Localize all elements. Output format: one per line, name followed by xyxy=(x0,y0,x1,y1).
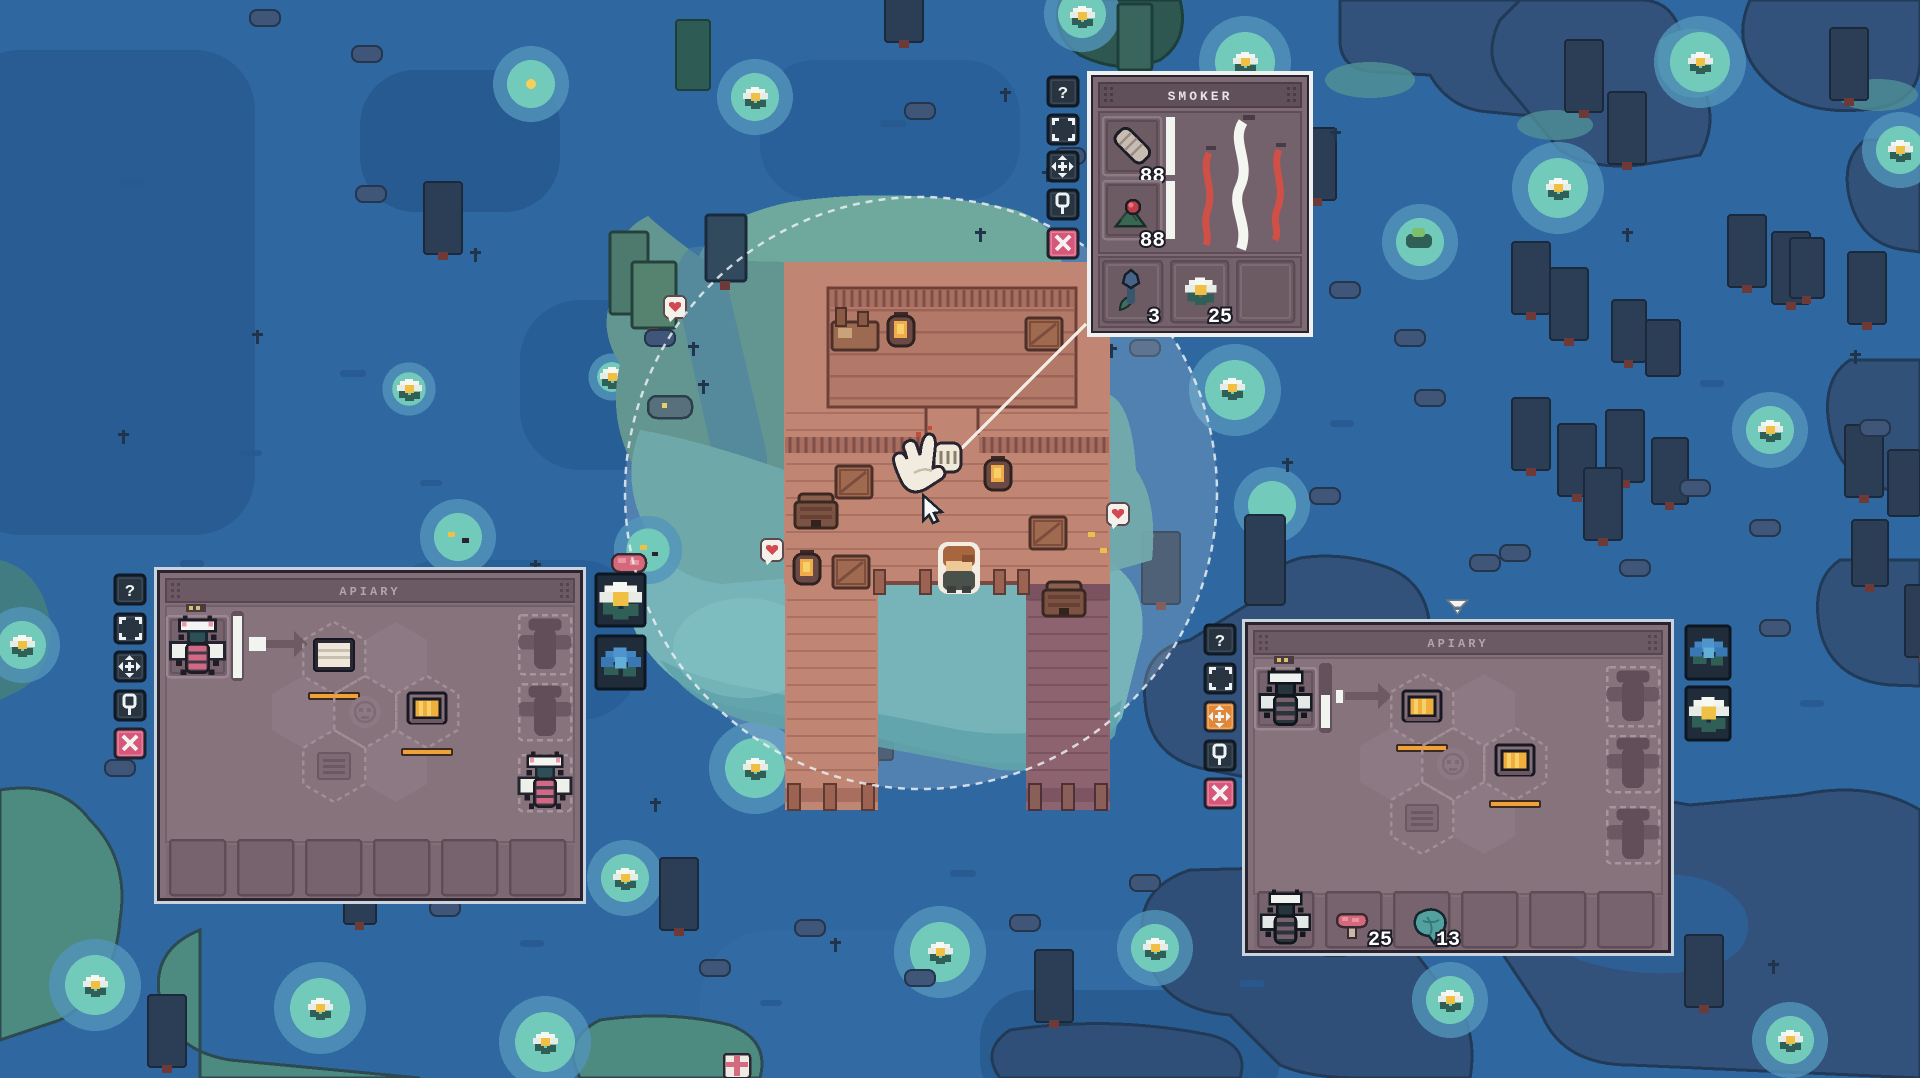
svg-text:3: 3 xyxy=(1148,306,1160,329)
svg-text:13: 13 xyxy=(1436,929,1460,952)
svg-text:SMOKER: SMOKER xyxy=(1168,89,1233,104)
svg-text:25: 25 xyxy=(1208,306,1232,329)
svg-text:APIARY: APIARY xyxy=(339,585,400,599)
svg-text:?: ? xyxy=(1215,633,1225,652)
svg-text:?: ? xyxy=(125,583,135,602)
svg-text:88: 88 xyxy=(1140,230,1165,253)
svg-text:25: 25 xyxy=(1368,929,1392,952)
svg-text:APIARY: APIARY xyxy=(1427,637,1488,651)
svg-text:?: ? xyxy=(1058,85,1068,104)
